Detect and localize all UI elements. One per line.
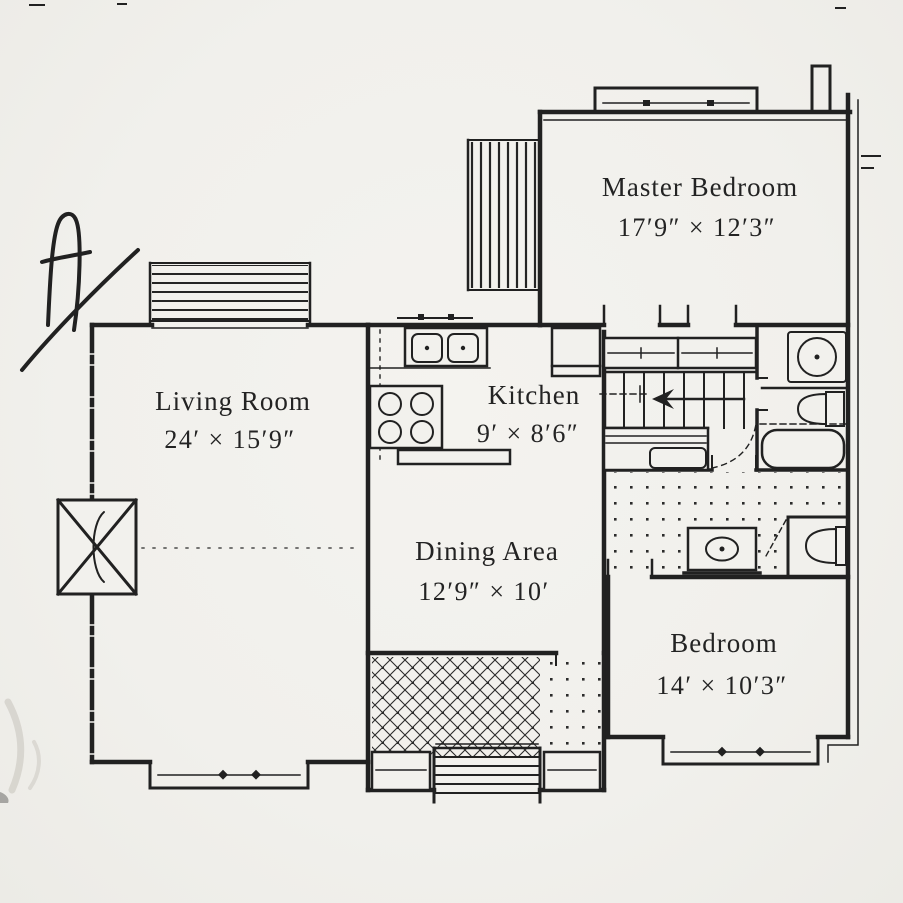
entry-stoop-right [544,752,600,790]
label-living-room: Living Room [155,386,311,416]
dims-dining-area: 12′9″ × 10′ [418,577,549,606]
hall-closets [604,338,756,368]
kitchen-peninsula-counter [398,450,510,464]
deck-vertical-slats [468,140,538,290]
deck-horizontal-slats [150,263,310,322]
scanned-floor-plan-page: Master Bedroom 17′9″ × 12′3″ Living Room… [0,0,903,903]
label-bedroom: Bedroom [670,628,778,658]
laundry-area [604,428,708,470]
fireplace [58,500,136,594]
floor-pattern-entry-tile [372,657,540,758]
kitchen-stove [370,386,442,448]
handwritten-annotation-a [22,214,138,370]
entry-stoop-left [372,752,430,790]
dims-kitchen: 9′ × 8′6″ [477,419,579,448]
kitchen-sink [368,328,490,368]
bathroom-upper [760,332,848,468]
floor-plan-drawing: Master Bedroom 17′9″ × 12′3″ Living Room… [0,0,903,903]
hall-vanity [684,528,760,573]
label-dining-area: Dining Area [415,536,559,566]
bedroom-bay-window [663,737,818,764]
label-kitchen: Kitchen [488,380,580,410]
staircase [604,372,756,428]
dims-living-room: 24′ × 15′9″ [164,425,295,454]
dims-master-bedroom: 17′9″ × 12′3″ [618,213,776,242]
kitchen-refrigerator [552,328,600,376]
toilet [798,392,844,426]
living-room-bay-window [150,762,308,788]
bathtub [760,424,846,468]
label-master-bedroom: Master Bedroom [602,172,798,202]
dims-bedroom: 14′ × 10′3″ [656,671,787,700]
bathroom-sink [788,332,846,382]
